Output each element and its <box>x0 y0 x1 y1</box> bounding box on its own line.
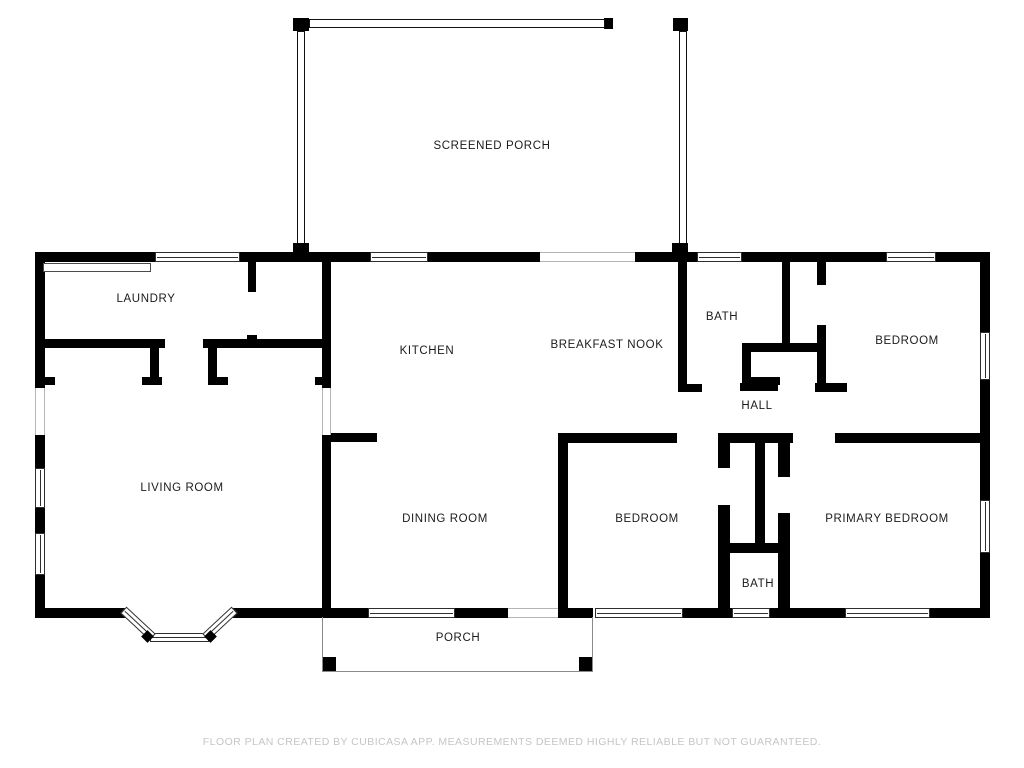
wall-segment <box>248 262 256 292</box>
wall-segment <box>755 443 765 547</box>
wall-segment <box>817 325 826 392</box>
wall-segment <box>930 608 990 618</box>
wall-segment <box>730 543 790 553</box>
wall-segment <box>604 18 613 29</box>
window <box>155 252 240 262</box>
room-label-porch: PORCH <box>436 632 481 644</box>
window <box>35 468 45 508</box>
room-label-bedroom-upper: BEDROOM <box>875 335 939 347</box>
wall-segment <box>718 505 730 618</box>
wall-segment <box>742 352 751 385</box>
wall-segment <box>558 433 677 443</box>
fixture <box>43 263 151 272</box>
room-label-bath-upper: BATH <box>706 311 738 323</box>
wall-segment <box>35 252 155 262</box>
wall-segment <box>778 443 790 477</box>
wall-segment <box>740 383 778 391</box>
window <box>980 332 990 380</box>
corner-post <box>293 18 309 31</box>
room-label-breakfast-nook: BREAKFAST NOOK <box>551 339 664 351</box>
wall-segment <box>150 348 159 378</box>
wall-segment <box>782 262 790 352</box>
room-label-bath-lower: BATH <box>742 578 774 590</box>
window <box>595 608 683 618</box>
window <box>732 608 770 618</box>
room-label-screened-porch: SCREENED PORCH <box>433 140 550 152</box>
wall-segment <box>817 262 826 285</box>
room-label-laundry: LAUNDRY <box>117 293 176 305</box>
wall-segment <box>742 343 825 352</box>
wall-segment <box>558 433 568 618</box>
room-label-kitchen: KITCHEN <box>400 345 455 357</box>
room-label-hall: HALL <box>741 400 772 412</box>
window <box>150 633 209 642</box>
window <box>845 608 930 618</box>
wall-segment <box>41 377 55 385</box>
floor-plan: SCREENED PORCHLAUNDRYKITCHENBREAKFAST NO… <box>0 0 1024 768</box>
wall-segment <box>742 252 886 262</box>
wall-segment <box>41 339 165 348</box>
corner-post <box>673 18 688 31</box>
porch-outline <box>322 617 593 672</box>
wall-segment <box>322 262 331 388</box>
wall-segment <box>203 339 330 348</box>
wall-segment <box>142 377 162 385</box>
screen-wall <box>679 31 687 245</box>
wall-segment <box>778 513 790 618</box>
wall-segment <box>35 508 45 533</box>
wall-segment <box>678 384 702 392</box>
wall-segment <box>428 252 540 262</box>
window <box>35 533 45 575</box>
wall-segment <box>35 435 45 468</box>
wall-opening <box>322 388 331 435</box>
wall-segment <box>835 433 990 443</box>
wall-segment <box>980 252 990 332</box>
room-label-dining-room: DINING ROOM <box>402 513 488 525</box>
wall-segment <box>815 383 847 392</box>
wall-segment <box>208 377 228 385</box>
wall-segment <box>35 608 128 618</box>
wall-segment <box>718 443 730 468</box>
window <box>980 500 990 553</box>
window <box>886 252 936 262</box>
wall-segment <box>315 377 330 385</box>
room-label-primary-bedroom: PRIMARY BEDROOM <box>825 513 949 525</box>
window <box>697 252 742 262</box>
room-label-living-room: LIVING ROOM <box>140 482 223 494</box>
corner-post <box>293 243 309 262</box>
wall-opening <box>35 388 45 435</box>
screen-wall <box>309 19 605 28</box>
window <box>370 252 428 262</box>
wall-segment <box>35 252 45 388</box>
disclaimer-text: FLOOR PLAN CREATED BY CUBICASA APP. MEAS… <box>0 736 1024 748</box>
screen-wall <box>297 31 305 245</box>
wall-segment <box>718 433 793 443</box>
wall-segment <box>208 348 217 378</box>
corner-post <box>672 243 688 262</box>
wall-segment <box>678 262 687 392</box>
room-label-bedroom-lower: BEDROOM <box>615 513 679 525</box>
wall-segment <box>322 435 331 610</box>
wall-opening <box>540 252 635 262</box>
